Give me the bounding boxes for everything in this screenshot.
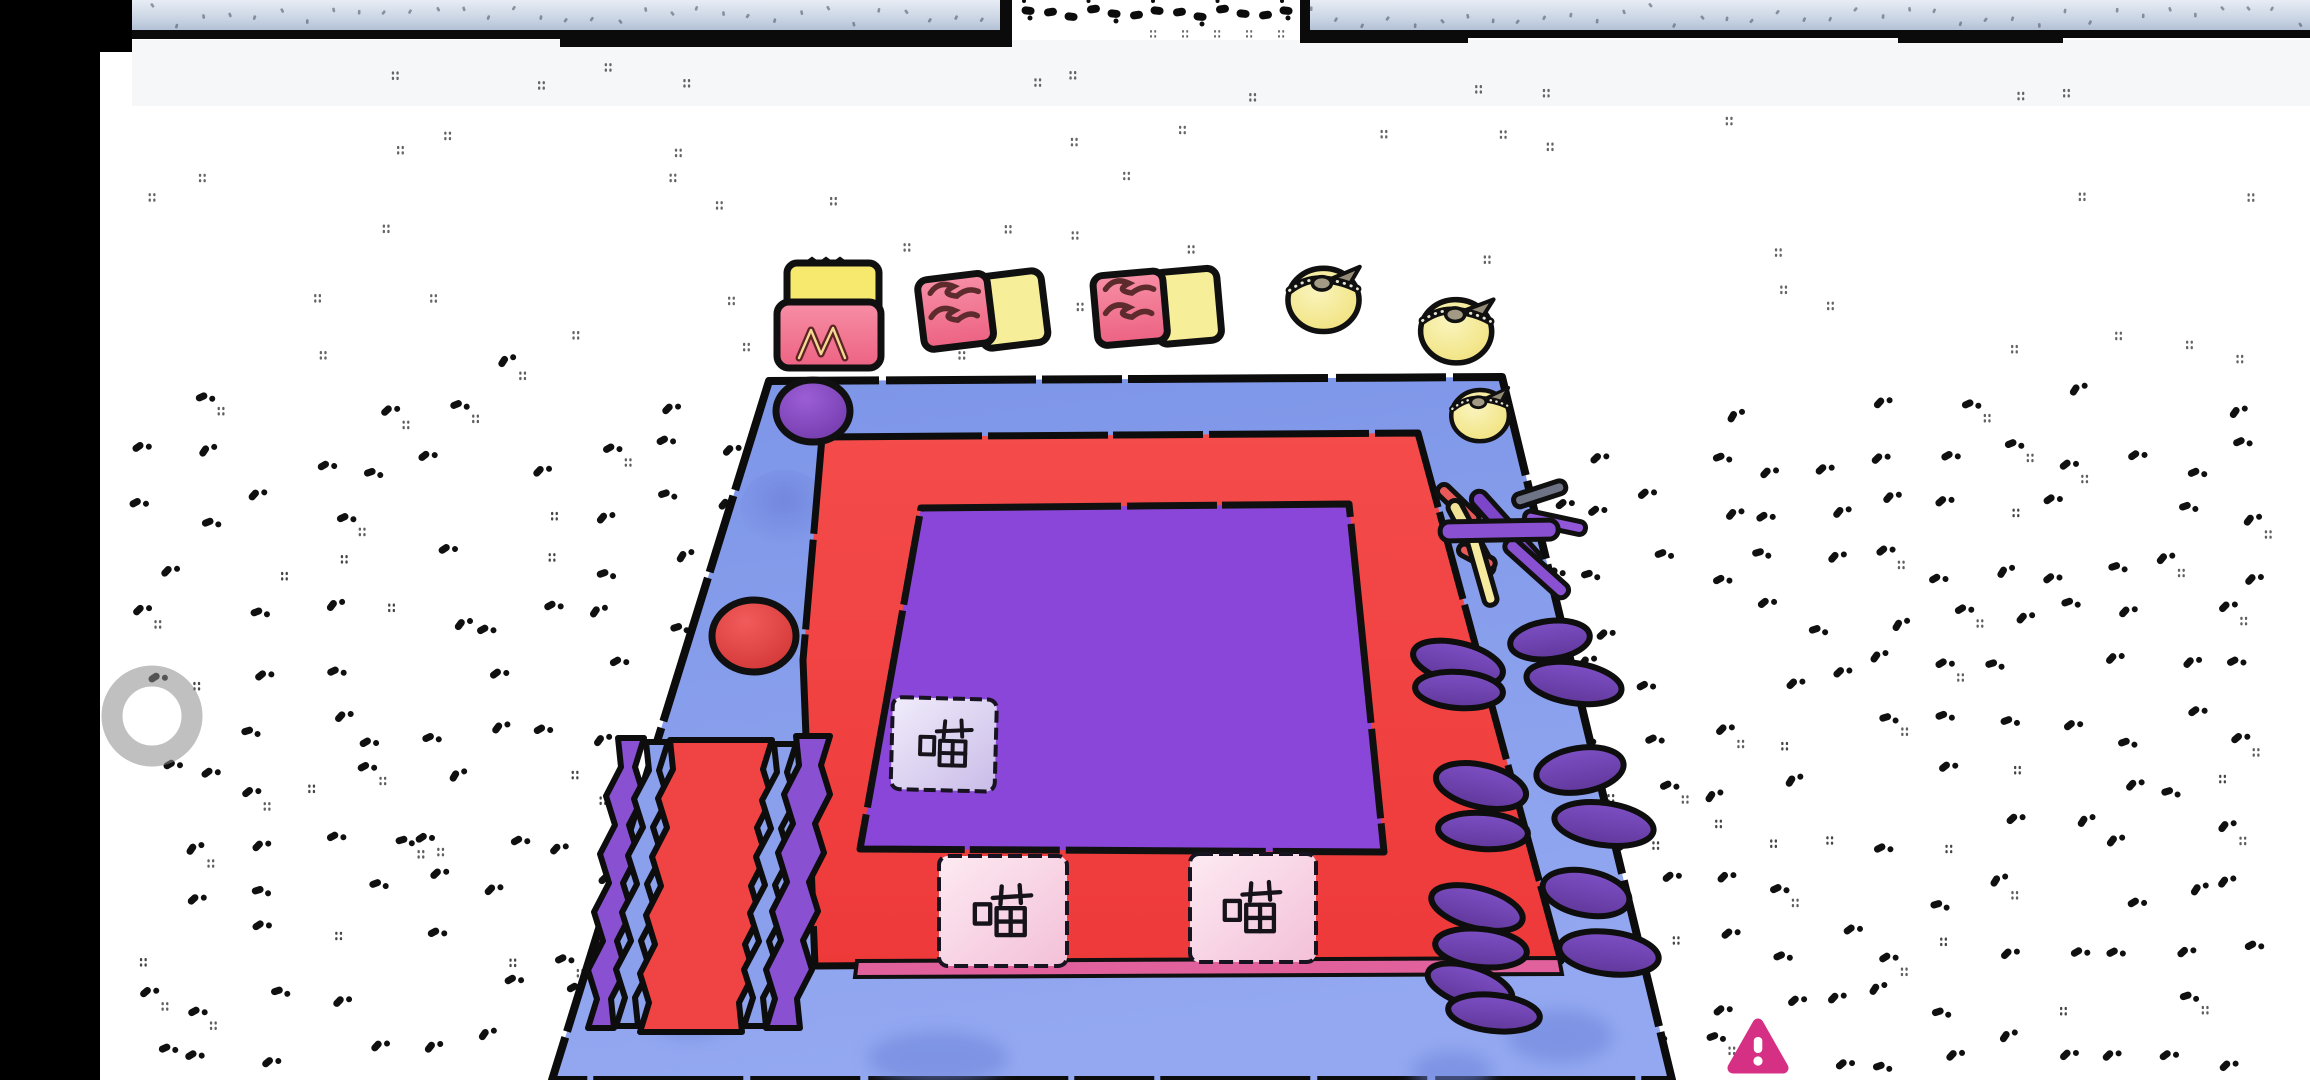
rolled-snack-item-left: [917, 266, 1049, 357]
pouch-dumpling-item-left: [1288, 267, 1360, 332]
red-dome: [712, 600, 796, 672]
meow-tile-center: [891, 697, 997, 792]
purple-dome: [776, 380, 850, 442]
floor-far-band: [132, 40, 2310, 106]
wrapped-snack-item: [777, 259, 881, 368]
warning-exclamation-bar: [1754, 1037, 1763, 1053]
meow-tile-track-left: [939, 856, 1067, 966]
warning-exclamation-dot: [1753, 1056, 1762, 1065]
pouch-dumpling-corner: [1450, 388, 1510, 442]
game-viewport[interactable]: !: [0, 0, 2310, 1080]
striped-ramp: [588, 736, 830, 1032]
game-screen[interactable]: !: [0, 0, 2310, 1080]
pouch-dumpling-item-right: [1420, 297, 1494, 364]
rolled-snack-item-right: [1092, 266, 1222, 351]
purple-center-square: [860, 504, 1384, 852]
meow-tile-track-right: [1190, 854, 1316, 962]
